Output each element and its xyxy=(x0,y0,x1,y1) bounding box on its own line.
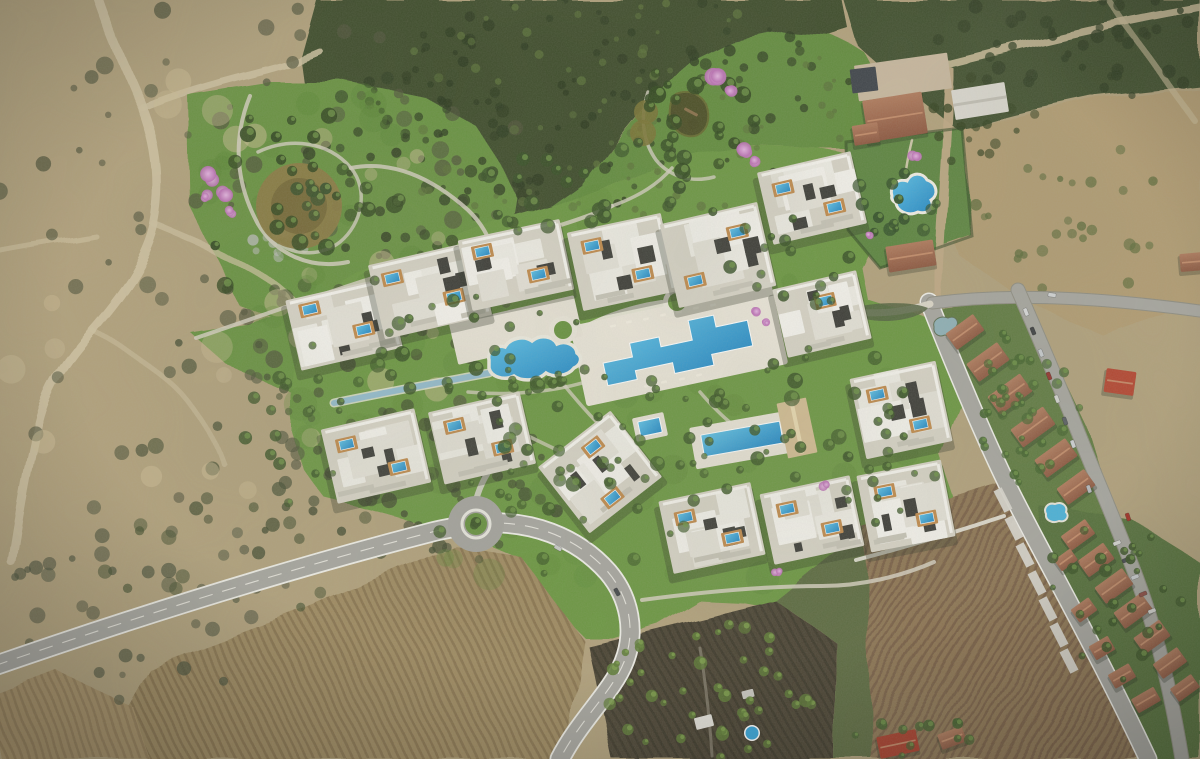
vignette-overlay xyxy=(0,0,1200,759)
aerial-masterplan-image xyxy=(0,0,1200,759)
aerial-masterplan-svg xyxy=(0,0,1200,759)
